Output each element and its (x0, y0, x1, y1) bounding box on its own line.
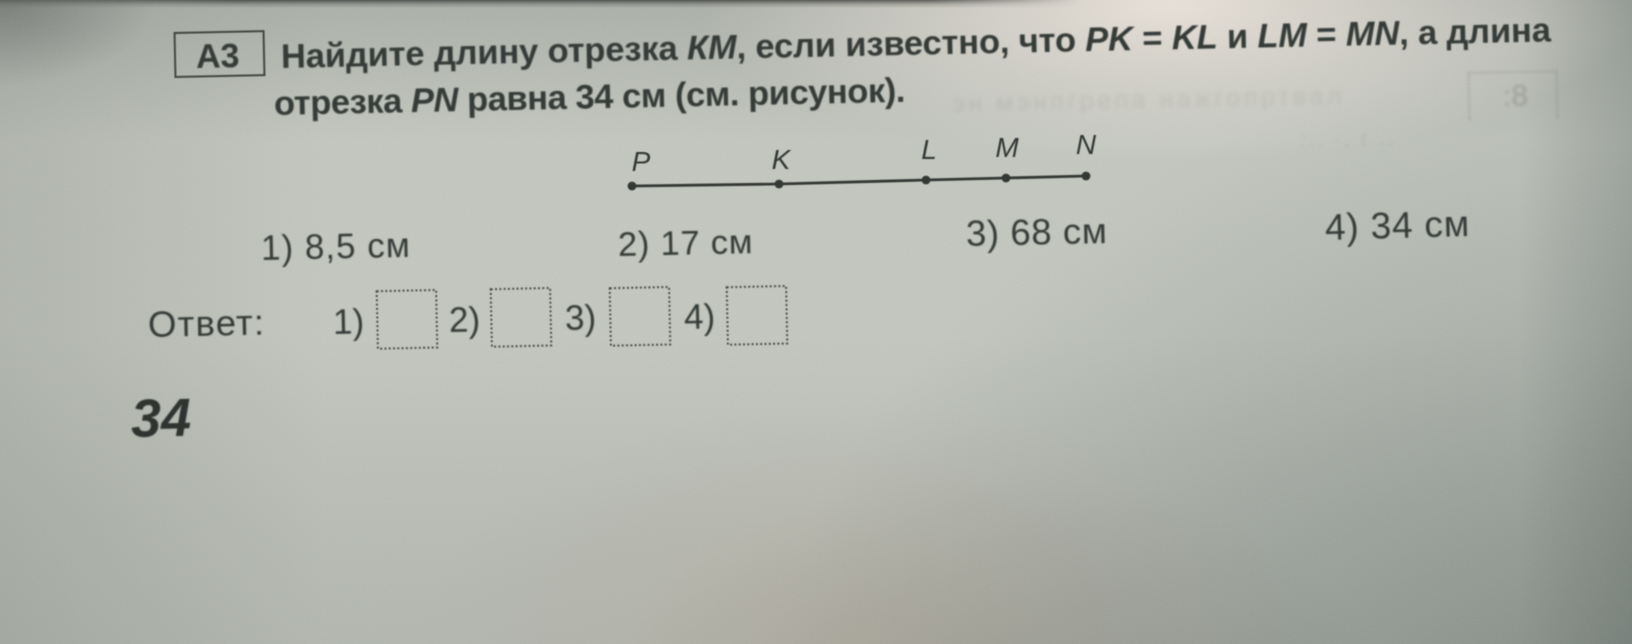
svg-text:L: L (921, 134, 937, 165)
svg-text:P: P (632, 146, 651, 177)
svg-text:N: N (1076, 129, 1097, 160)
svg-text:M: M (995, 132, 1019, 163)
svg-text:K: K (772, 144, 792, 175)
